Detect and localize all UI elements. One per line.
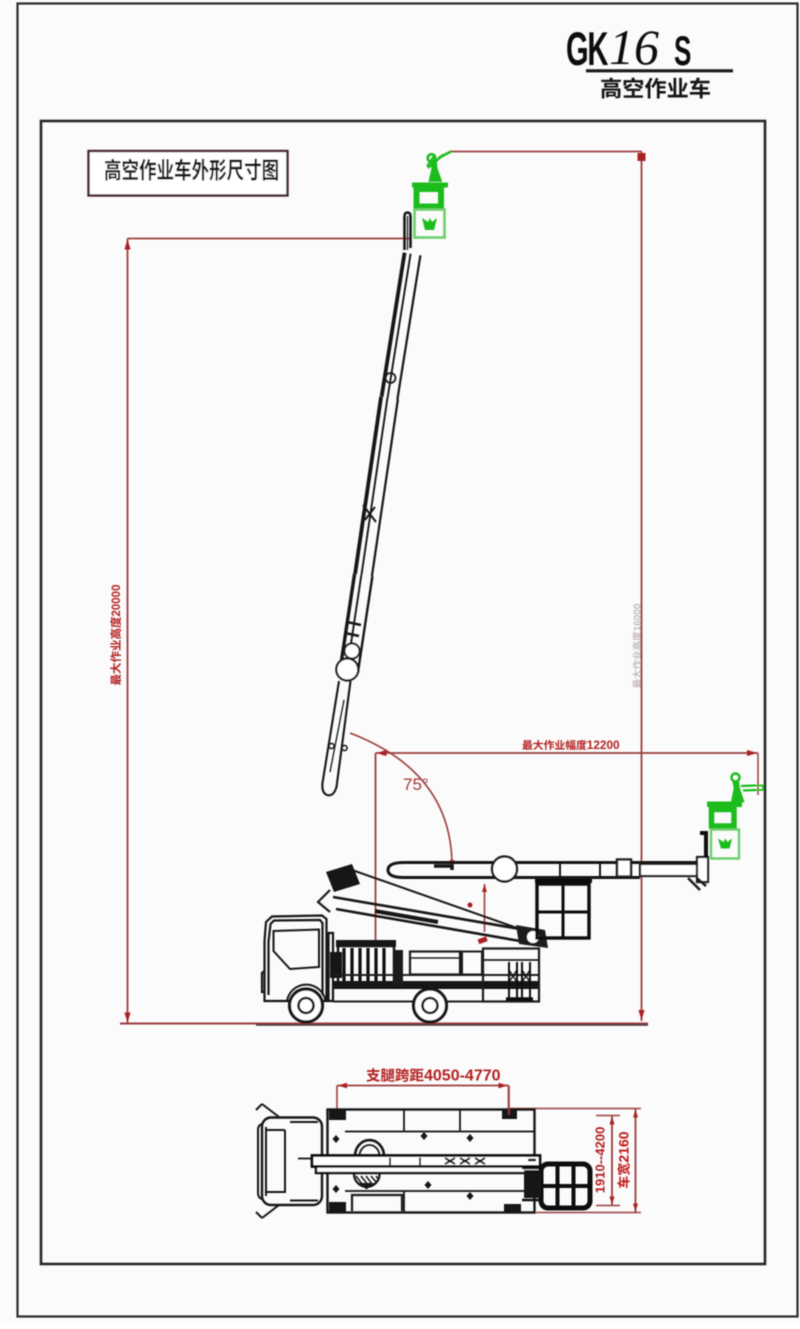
svg-text:75°: 75°	[403, 775, 429, 794]
svg-text:20000: 20000	[111, 585, 123, 617]
svg-text:2160: 2160	[616, 1131, 632, 1162]
svg-text:1910--4200: 1910--4200	[593, 1127, 608, 1194]
svg-text:S: S	[674, 28, 691, 75]
svg-text:GK: GK	[566, 24, 608, 76]
svg-text:4050-4770: 4050-4770	[424, 1068, 501, 1085]
svg-text:12200: 12200	[587, 738, 620, 752]
svg-text:16: 16	[609, 19, 659, 75]
